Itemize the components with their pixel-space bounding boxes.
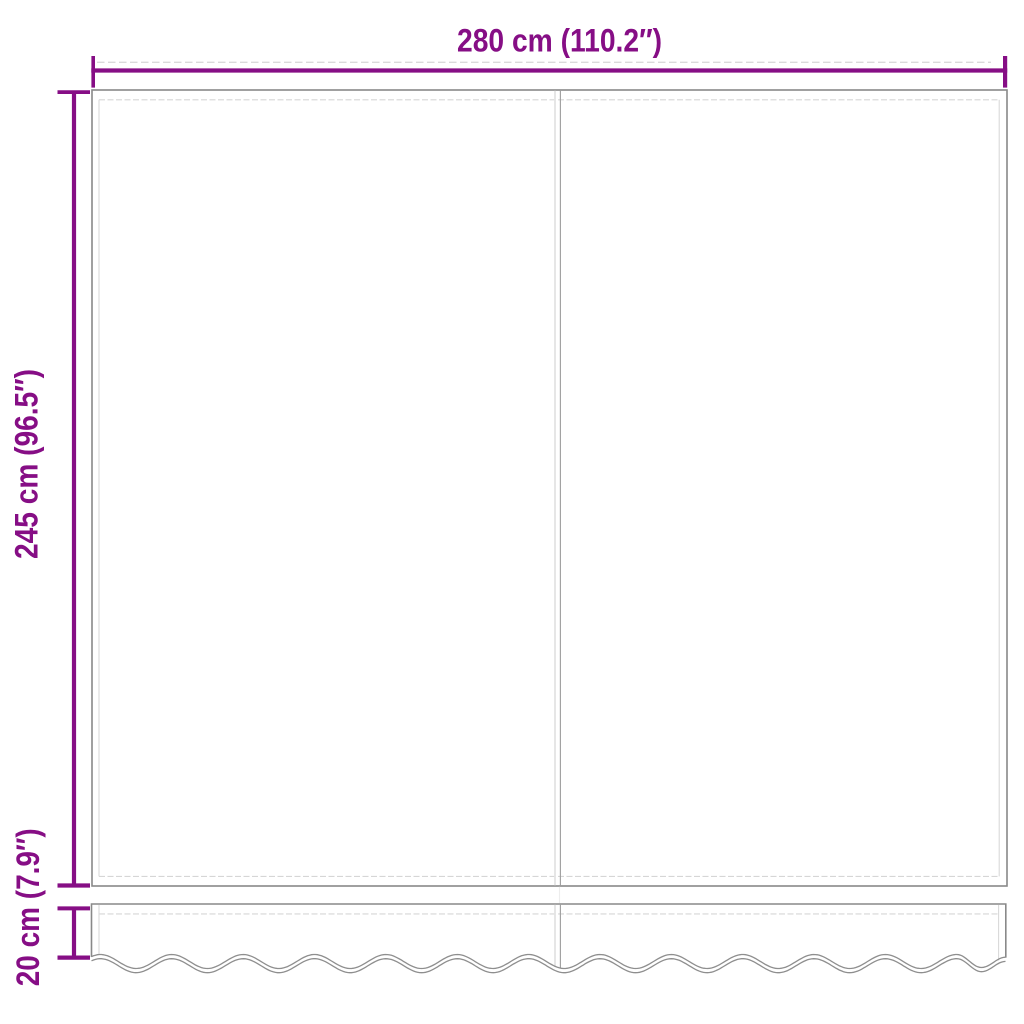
svg-text:20 cm (7.9″): 20 cm (7.9″) (10, 828, 46, 986)
svg-text:245 cm (96.5″): 245 cm (96.5″) (9, 369, 45, 559)
svg-text:280 cm (110.2″): 280 cm (110.2″) (457, 23, 662, 59)
